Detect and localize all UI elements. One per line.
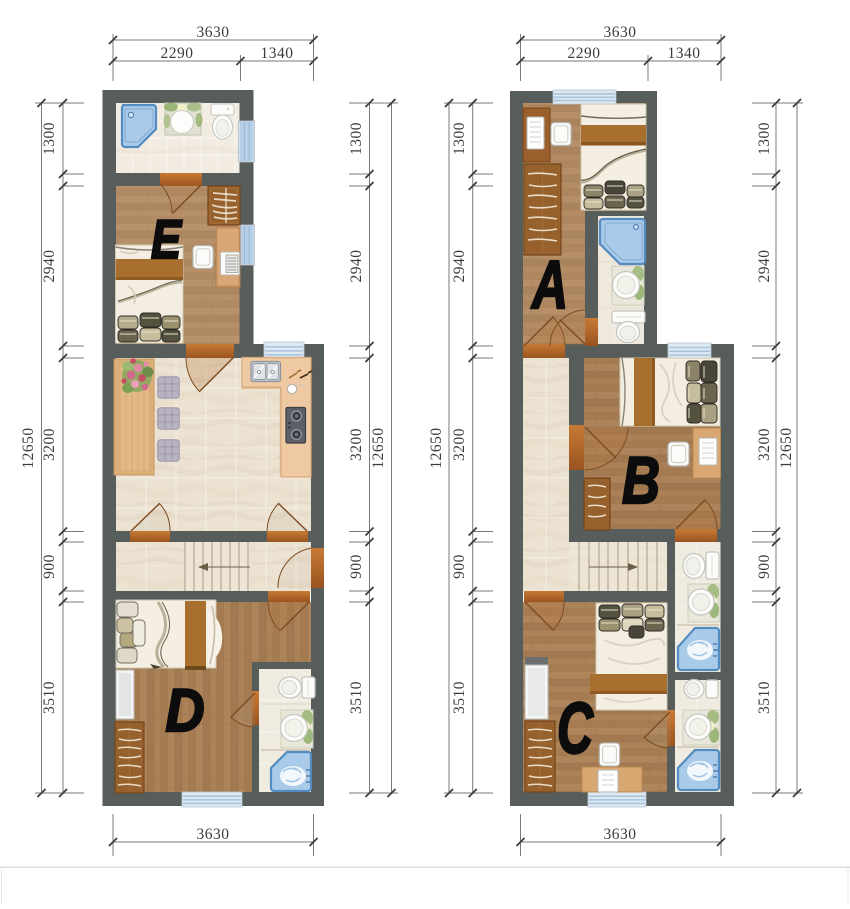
svg-text:1340: 1340 bbox=[668, 45, 701, 62]
svg-text:B: B bbox=[622, 443, 660, 517]
svg-text:900: 900 bbox=[451, 554, 468, 579]
svg-text:2290: 2290 bbox=[568, 45, 601, 62]
svg-text:2940: 2940 bbox=[451, 250, 468, 283]
svg-text:A: A bbox=[531, 247, 568, 323]
svg-text:2940: 2940 bbox=[756, 250, 773, 283]
svg-text:D: D bbox=[166, 677, 205, 744]
svg-text:900: 900 bbox=[41, 554, 58, 579]
svg-text:1340: 1340 bbox=[261, 45, 294, 62]
svg-text:2290: 2290 bbox=[161, 45, 194, 62]
svg-text:E: E bbox=[151, 208, 183, 270]
svg-text:12650: 12650 bbox=[20, 427, 37, 468]
svg-text:3200: 3200 bbox=[451, 428, 468, 461]
svg-text:3200: 3200 bbox=[348, 428, 365, 461]
svg-text:3630: 3630 bbox=[604, 24, 637, 41]
svg-text:3510: 3510 bbox=[451, 681, 468, 714]
svg-text:1300: 1300 bbox=[756, 122, 773, 155]
svg-text:3630: 3630 bbox=[197, 24, 230, 41]
svg-text:3200: 3200 bbox=[41, 428, 58, 461]
svg-text:900: 900 bbox=[756, 554, 773, 579]
svg-text:12650: 12650 bbox=[370, 427, 387, 468]
svg-text:3630: 3630 bbox=[197, 826, 230, 843]
svg-text:3510: 3510 bbox=[41, 681, 58, 714]
svg-text:900: 900 bbox=[348, 554, 365, 579]
svg-text:3630: 3630 bbox=[604, 826, 637, 843]
svg-text:3510: 3510 bbox=[756, 681, 773, 714]
svg-text:1300: 1300 bbox=[41, 122, 58, 155]
svg-text:3510: 3510 bbox=[348, 681, 365, 714]
svg-text:2940: 2940 bbox=[348, 250, 365, 283]
svg-text:1300: 1300 bbox=[348, 122, 365, 155]
svg-text:12650: 12650 bbox=[778, 427, 795, 468]
svg-text:3200: 3200 bbox=[756, 428, 773, 461]
svg-text:1300: 1300 bbox=[451, 122, 468, 155]
svg-text:C: C bbox=[557, 689, 594, 769]
svg-text:12650: 12650 bbox=[428, 427, 445, 468]
svg-text:2940: 2940 bbox=[41, 250, 58, 283]
